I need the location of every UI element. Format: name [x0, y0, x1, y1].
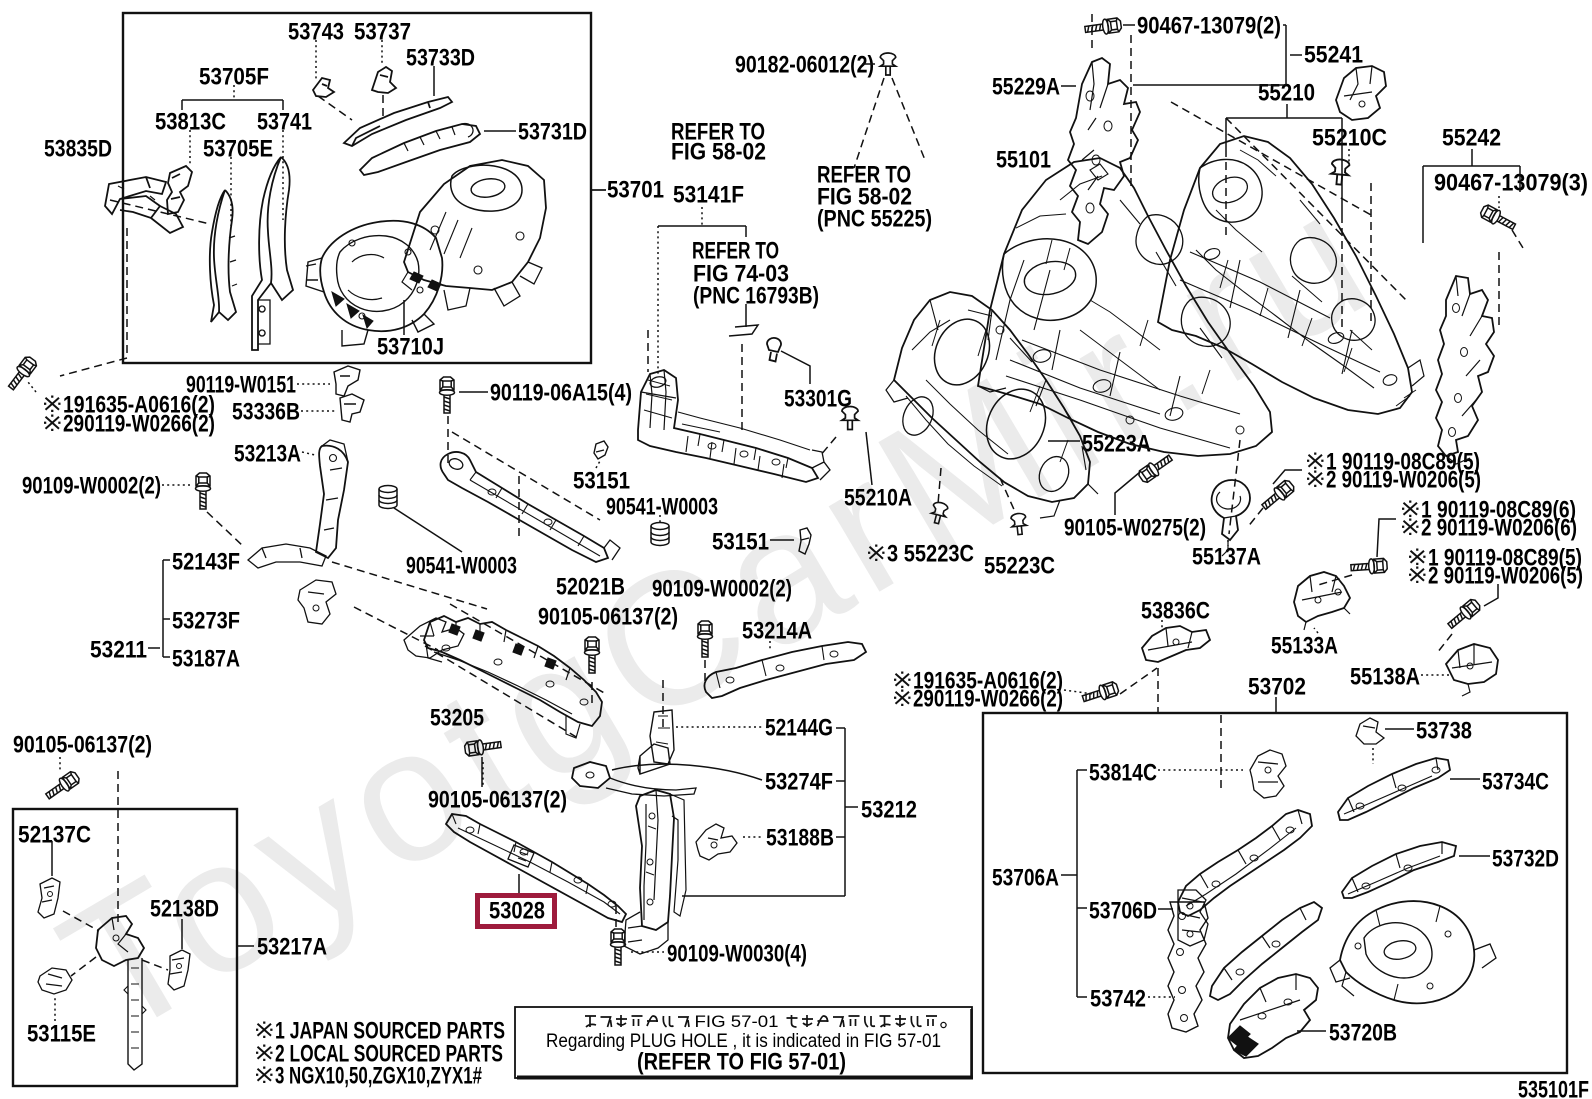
svg-text:53836C: 53836C: [1141, 598, 1210, 625]
svg-text:53731D: 53731D: [518, 119, 587, 146]
svg-text:52144G: 52144G: [765, 715, 833, 742]
svg-text:55101: 55101: [996, 147, 1051, 174]
svg-text:(PNC 16793B): (PNC 16793B): [693, 283, 819, 310]
svg-text:53188B: 53188B: [766, 825, 834, 852]
svg-text:52143F: 52143F: [172, 549, 240, 576]
svg-text:53701: 53701: [607, 177, 664, 204]
svg-text:90105-06137(2): 90105-06137(2): [538, 604, 678, 631]
svg-text:53720B: 53720B: [1329, 1020, 1397, 1047]
svg-text:53187A: 53187A: [172, 646, 240, 673]
svg-text:53301G: 53301G: [784, 386, 852, 413]
svg-text:55223C: 55223C: [984, 553, 1055, 580]
svg-text:55210A: 55210A: [844, 485, 912, 512]
svg-text:2 90119-W0206(5): 2 90119-W0206(5): [1326, 467, 1481, 494]
svg-text:53274F: 53274F: [765, 769, 833, 796]
svg-text:90541-W0003: 90541-W0003: [406, 553, 517, 580]
svg-text:53741: 53741: [257, 109, 312, 136]
svg-text:53705E: 53705E: [203, 136, 273, 163]
svg-text:90105-W0275(2): 90105-W0275(2): [1064, 515, 1206, 542]
svg-text:53336B: 53336B: [232, 399, 300, 426]
svg-text:3 55223C: 3 55223C: [887, 541, 974, 568]
svg-text:53733D: 53733D: [406, 45, 475, 72]
svg-text:52137C: 52137C: [18, 822, 91, 849]
svg-text:53115E: 53115E: [27, 1021, 96, 1048]
svg-text:55242: 55242: [1442, 125, 1501, 152]
svg-text:90105-06137(2): 90105-06137(2): [13, 732, 152, 759]
svg-text:90467-13079(2): 90467-13079(2): [1137, 13, 1281, 40]
svg-text:90182-06012(2): 90182-06012(2): [735, 52, 874, 79]
svg-text:3 NGX10,50,ZGX10,ZYX1#: 3 NGX10,50,ZGX10,ZYX1#: [275, 1063, 482, 1090]
svg-text:53028: 53028: [489, 898, 545, 925]
svg-text:90541-W0003: 90541-W0003: [606, 494, 718, 521]
svg-text:52021B: 52021B: [556, 574, 625, 601]
svg-text:290119-W0266(2): 290119-W0266(2): [913, 686, 1063, 713]
svg-text:55210C: 55210C: [1312, 125, 1387, 152]
svg-text:90467-13079(3): 90467-13079(3): [1434, 170, 1588, 197]
svg-text:90109-W0002(2): 90109-W0002(2): [652, 576, 792, 603]
svg-text:53214A: 53214A: [742, 618, 812, 645]
svg-text:55137A: 55137A: [1192, 544, 1261, 571]
svg-text:53742: 53742: [1090, 986, 1146, 1013]
svg-text:53273F: 53273F: [172, 608, 240, 635]
svg-text:53141F: 53141F: [673, 182, 744, 209]
svg-text:55241: 55241: [1304, 42, 1363, 69]
svg-text:53706A: 53706A: [992, 865, 1059, 892]
svg-text:FIG 57-01: FIG 57-01: [695, 1012, 779, 1031]
svg-text:53710J: 53710J: [377, 334, 444, 361]
svg-text:53213A: 53213A: [234, 441, 301, 468]
svg-text:90109-W0030(4): 90109-W0030(4): [667, 941, 807, 968]
svg-text:(REFER TO FIG 57-01): (REFER TO FIG 57-01): [637, 1049, 846, 1076]
svg-text:90105-06137(2): 90105-06137(2): [428, 787, 567, 814]
svg-text:90119-06A15(4): 90119-06A15(4): [490, 380, 632, 407]
svg-text:53212: 53212: [861, 797, 917, 824]
svg-text:2 90119-W0206(6): 2 90119-W0206(6): [1421, 515, 1577, 542]
svg-text:53732D: 53732D: [1492, 846, 1559, 873]
svg-text:53211: 53211: [90, 637, 147, 664]
svg-text:(PNC 55225): (PNC 55225): [817, 206, 932, 233]
svg-text:53734C: 53734C: [1482, 769, 1549, 796]
svg-text:53217A: 53217A: [257, 934, 327, 961]
svg-text:53814C: 53814C: [1089, 760, 1157, 787]
svg-text:53205: 53205: [430, 705, 484, 732]
svg-text:53151: 53151: [573, 468, 630, 495]
svg-text:52138D: 52138D: [150, 896, 219, 923]
svg-text:55223A: 55223A: [1082, 431, 1151, 458]
svg-text:55133A: 55133A: [1271, 633, 1338, 660]
svg-text:90109-W0002(2): 90109-W0002(2): [22, 473, 161, 500]
svg-text:53738: 53738: [1416, 718, 1472, 745]
svg-text:53706D: 53706D: [1089, 898, 1157, 925]
svg-text:2 90119-W0206(5): 2 90119-W0206(5): [1428, 563, 1583, 590]
svg-text:FIG 58-02: FIG 58-02: [671, 139, 766, 166]
svg-text:53702: 53702: [1248, 674, 1306, 701]
svg-text:53835D: 53835D: [44, 136, 112, 163]
svg-text:535101F: 535101F: [1518, 1077, 1589, 1099]
svg-text:290119-W0266(2): 290119-W0266(2): [63, 411, 215, 438]
svg-text:53151: 53151: [712, 529, 769, 556]
svg-text:55138A: 55138A: [1350, 664, 1420, 691]
svg-text:55229A: 55229A: [992, 74, 1060, 101]
